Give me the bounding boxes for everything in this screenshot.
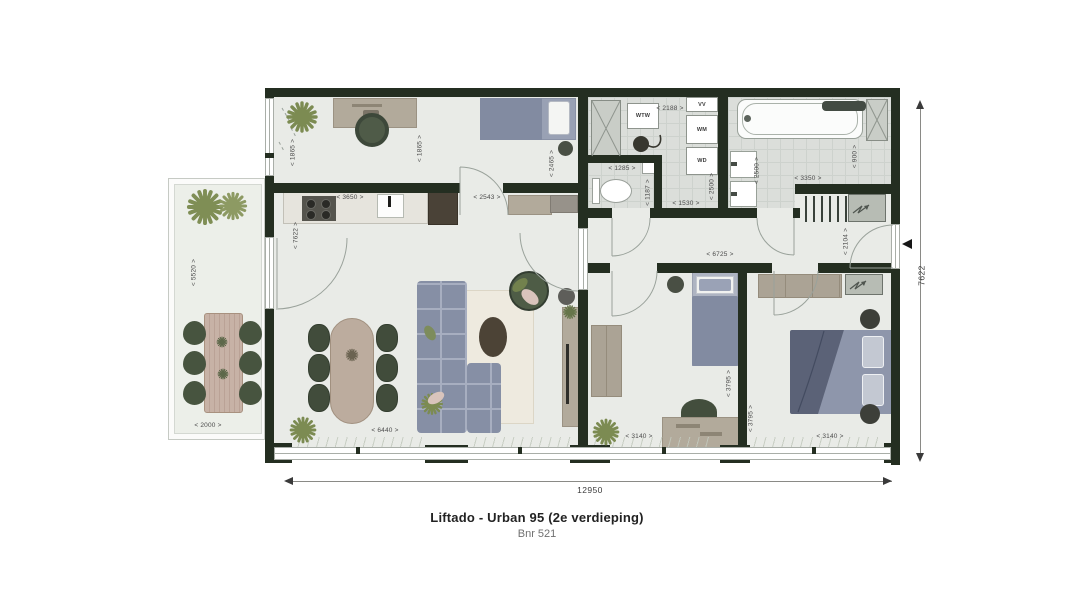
dim-tech-depth: < 2500 > [708, 167, 717, 207]
dim-bathroom-depth: < 2500 > [753, 151, 762, 191]
dim-kitchen-width: < 3650 > [325, 193, 375, 202]
cooktop-burner [321, 210, 331, 220]
nook-bed-blanket [480, 98, 542, 140]
study-window [265, 98, 274, 176]
terrace-chair [183, 381, 206, 405]
dim-study-window: < 1865 > [289, 133, 298, 173]
bedroom2-wardrobe [758, 274, 842, 298]
washer-unit: WM [686, 115, 718, 144]
window-band-bottom [274, 447, 891, 460]
dim-study-depth: < 1865 > [416, 129, 425, 169]
hanging-chair [509, 271, 549, 311]
nook-sideboard [508, 195, 552, 215]
nook-sideboard-right [550, 195, 578, 213]
dim-living-width: < 6440 > [363, 426, 407, 435]
study-chair [355, 113, 389, 147]
meter-cabinet [848, 194, 886, 222]
dim-balcony-length: < 5520 > [190, 253, 199, 293]
wall-hall-bottom-b [657, 263, 772, 273]
terrace-chair [239, 381, 262, 405]
bedroom1-wardrobe [591, 325, 622, 397]
dim-total-depth: 7622 [917, 254, 928, 298]
sink-tap [731, 192, 737, 196]
wd-label: WD [697, 158, 707, 164]
radiator [805, 196, 847, 222]
bedroom2-pillow [862, 336, 884, 368]
nook-bed-pillow [548, 101, 570, 135]
toilet-cistern [592, 178, 600, 204]
wall-living-hall [578, 88, 588, 228]
wall-hall-bottom-c [818, 263, 893, 273]
meter-cabinet [845, 274, 883, 295]
shaft [591, 100, 621, 157]
dim-bedroom1-depth: < 3795 > [725, 364, 734, 404]
dim-arrow-left [284, 477, 293, 485]
dim-living-depth: < 7622 > [292, 216, 301, 256]
dining-chair [376, 384, 398, 412]
plan-caption: Liftado - Urban 95 (2e verdieping) Bnr 5… [287, 510, 787, 540]
dim-bedroom2-width: < 3140 > [808, 432, 852, 441]
sofa-vertical [417, 281, 467, 433]
nightstand [860, 404, 880, 424]
vv-label: VV [698, 102, 706, 108]
coffee-table [479, 317, 507, 357]
nightstand [860, 309, 880, 329]
bedroom1-pouf [667, 276, 684, 293]
dining-table [330, 318, 374, 424]
desk-accessory [352, 104, 382, 107]
dim-arrow-right [883, 477, 892, 485]
dim-bathroom-side: < 900 > [851, 137, 860, 177]
toilet-bowl [600, 179, 632, 203]
dim-balcony-width: < 2000 > [188, 421, 228, 430]
floor-plan: WTW VV WM WD [0, 0, 1092, 614]
terrace-chair [239, 351, 262, 375]
bedroom2-pillow [862, 374, 884, 406]
window-mullion [356, 447, 360, 454]
dim-tech-inner-width: < 1530 > [664, 199, 708, 208]
terrace-chair [183, 351, 206, 375]
dim-total-width: 12950 [545, 485, 635, 496]
bathtub-faucet [744, 115, 751, 122]
wall-tech-bath [718, 88, 728, 218]
wtw-label: WTW [636, 113, 650, 119]
cooktop-burner [306, 210, 316, 220]
entrance-door-opening [891, 224, 900, 269]
plan-title: Liftado - Urban 95 (2e verdieping) [287, 510, 787, 525]
dim-line-bottom [288, 481, 892, 482]
bedroom1-pillow-top [699, 279, 731, 291]
vv-unit: VV [686, 97, 718, 112]
dining-chair [308, 324, 330, 352]
wall-toilet-top [588, 155, 662, 163]
wall-living-bed1 [578, 290, 588, 447]
vacuum-cleaner [633, 136, 649, 152]
dim-toilet-width: < 1285 > [600, 164, 644, 173]
wall-kitchen-b [503, 183, 578, 193]
balcony-door-opening [265, 237, 274, 309]
dim-arrow-top [916, 100, 924, 109]
dim-entry-depth: < 2104 > [842, 222, 851, 262]
tv-screen [566, 344, 569, 404]
wall-right [891, 88, 900, 465]
wall-hall-top-a [588, 208, 612, 218]
dim-bed-nook-depth: < 2465 > [548, 144, 557, 184]
bedroom1-blanket [692, 296, 738, 366]
dim-bedroom2-depth: < 3795 > [747, 399, 756, 439]
sink-tap [388, 196, 391, 207]
dim-bed-nook-width: < 2543 > [465, 193, 509, 202]
terrace-chair [183, 321, 206, 345]
window-mullion [662, 447, 666, 454]
sink-tap [731, 162, 737, 166]
window-mullion [518, 447, 522, 454]
dim-tech-width: < 2188 > [652, 104, 688, 113]
dim-bathroom-width: < 3350 > [786, 174, 830, 183]
dining-chair [308, 354, 330, 382]
entrance-marker [902, 239, 912, 249]
cooktop-burner [306, 199, 316, 209]
wall-hall-top-b [650, 208, 757, 218]
dining-chair [376, 324, 398, 352]
shaft [866, 99, 888, 141]
terrace-chair [239, 321, 262, 345]
terrace-table [204, 313, 243, 413]
dim-hall-width: < 6725 > [698, 250, 742, 259]
shower-bar [822, 101, 866, 111]
dining-chair [376, 354, 398, 382]
wall-bath-bottom [795, 184, 891, 194]
desk-accessory [700, 432, 722, 436]
floor-lamp [558, 288, 575, 305]
desk-accessory [676, 424, 700, 428]
sofa-arm [467, 363, 501, 433]
dim-bedroom1-width: < 3140 > [617, 432, 661, 441]
dim-arrow-bottom [916, 453, 924, 462]
wall-kitchen-a [274, 183, 460, 193]
window-mullion [812, 447, 816, 454]
window-mullion [265, 153, 274, 158]
nook-pouf [558, 141, 573, 156]
wall-hall-top-c [793, 208, 800, 218]
dim-toilet-depth: < 1187 > [644, 173, 653, 213]
wm-label: WM [697, 127, 707, 133]
plan-number: Bnr 521 [287, 528, 787, 540]
hall-glass-partition [578, 228, 588, 290]
dining-chair [308, 384, 330, 412]
